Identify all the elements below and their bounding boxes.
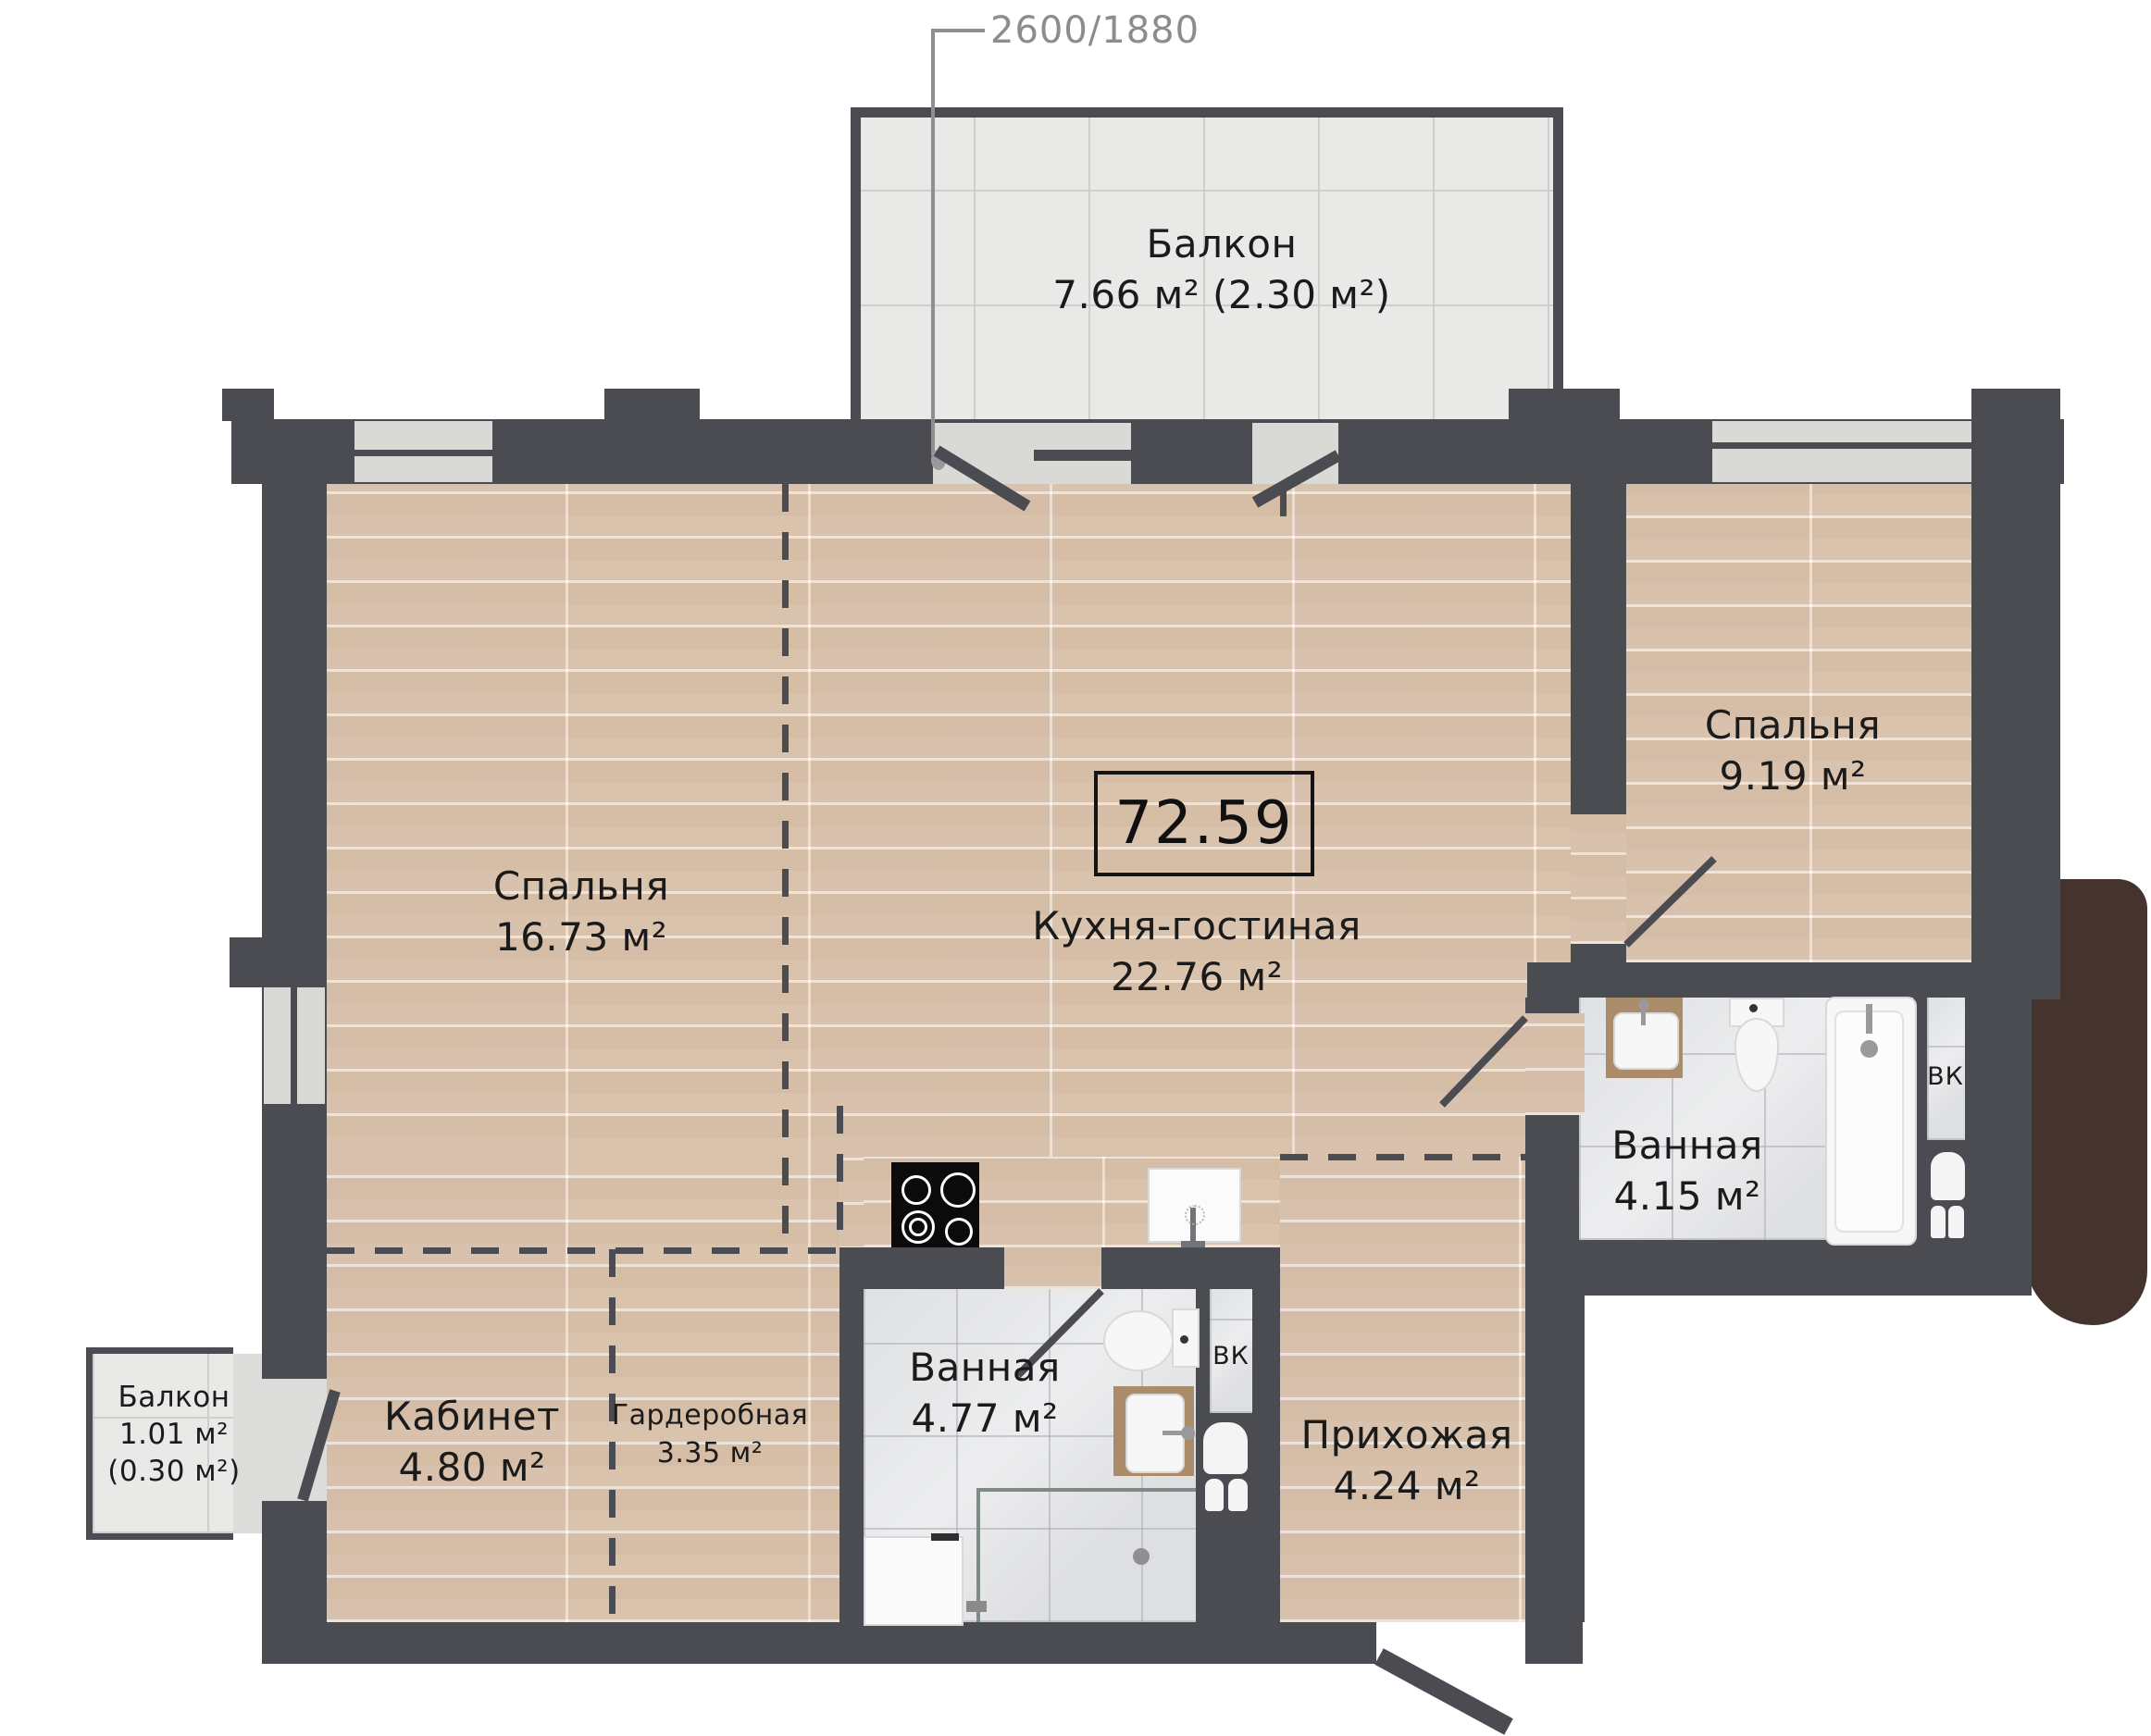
room-area: 22.76 м² [942,953,1451,1000]
room-name: Кухня-гостиная [942,902,1451,949]
stove-burner-4 [945,1218,973,1246]
floor-plan: 2600/1880 72.59 Спальня 16.73 м² Кухня-г… [0,0,2151,1736]
room-area: 4.77 м² [846,1395,1124,1442]
kitchen-faucet-aerator [1185,1205,1205,1225]
wall-bathroom-lower-top-a [864,1247,1004,1289]
room-area-line2: (0.30 м²) [80,1455,268,1490]
room-area: 3.35 м² [590,1437,830,1471]
room-label-balcony-small: Балкон 1.01 м² (0.30 м²) [80,1381,268,1489]
window-bedroom-left-side-mullion [291,987,297,1104]
room-label-bedroom-left: Спальня 16.73 м² [396,862,766,961]
room-name: Ванная [1548,1122,1826,1169]
room-area: 9.19 м² [1608,752,1978,800]
pier-top-1 [604,389,700,421]
washing-machine [864,1536,964,1626]
shaft-right-fixture-small-2 [1948,1206,1964,1238]
room-name: Спальня [1608,701,1978,749]
wall-right-bedroom [1971,419,2060,999]
stove-burner-1 [901,1175,931,1205]
room-name: Прихожая [1268,1411,1546,1458]
balcony-top-fence-top [851,107,1563,118]
wall-bottom [262,1622,1376,1664]
pier-top-left [222,389,274,421]
room-name: Балкон [80,1381,268,1416]
doorway-bathroom-right [1525,1013,1585,1115]
room-label-bathroom-right: Ванная 4.15 м² [1548,1122,1826,1220]
entrance-door-leaf [1379,1656,1509,1727]
room-area: 4.15 м² [1548,1172,1826,1220]
window-bedroom-right-top [1712,421,1971,482]
pier-top-right [1971,389,2060,421]
dashed-zone-bedroom-kitchen [782,484,789,1252]
kitchen-faucet-base [1181,1241,1205,1247]
bathtub-faucet-stem [1866,1004,1872,1034]
room-label-wardrobe: Гардеробная 3.35 м² [590,1399,830,1470]
bathtub-drain-knob [1860,1040,1878,1058]
dashed-zone-bedroom-office [327,1247,839,1254]
balcony-door-pier [1131,423,1252,484]
room-name: Балкон [1037,220,1407,267]
floor-office-wardrobe [327,1157,839,1622]
room-name: Кабинет [333,1393,611,1440]
room-name: Ванная [846,1344,1124,1391]
room-area: 16.73 м² [396,913,766,961]
room-area-line1: 1.01 м² [80,1418,268,1453]
shaft-right-fixture-large [1931,1152,1965,1200]
room-label-bathroom-lower: Ванная 4.77 м² [846,1344,1124,1442]
vanity-sink-right [1613,1012,1679,1070]
shaft-label-lower: ВК [1203,1342,1259,1370]
stove-burner-2 [940,1172,976,1208]
room-area: 4.80 м² [333,1444,611,1491]
shaft-lower-fixture-large [1203,1422,1248,1474]
room-label-balcony-top: Балкон 7.66 м² (2.30 м²) [1037,220,1407,318]
toilet-right-button [1749,1004,1758,1012]
toilet-lower-button [1180,1335,1188,1344]
room-label-hallway: Прихожая 4.24 м² [1268,1411,1546,1509]
shaft-lower-fixture-small-1 [1205,1479,1224,1511]
room-area: 4.24 м² [1268,1462,1546,1509]
washing-machine-panel [931,1533,959,1541]
wall-bathroom-right-bottom [1527,1240,2032,1296]
vanity-faucet-lower-knob [1181,1426,1195,1440]
pier-left-side [230,937,262,987]
pier-top-2 [1509,389,1620,421]
room-name: Гардеробная [590,1399,830,1433]
balcony-top-fence-right [1553,107,1563,423]
stove-burner-3-inner [909,1218,927,1236]
balcony-door-transom [1034,450,1131,461]
window-bedroom-right-top-mullion [1712,442,1971,449]
vanity-faucet-knob-right [1638,999,1649,1011]
shaft-right-fixture-small-1 [1931,1206,1946,1238]
floor-bedroom-door-threshold [1571,814,1626,944]
total-area-badge: 72.59 [1094,771,1314,876]
room-label-kitchen-living: Кухня-гостиная 22.76 м² [942,902,1451,1000]
dashed-zone-kitchen-counter [837,1106,843,1247]
shaft-label-right: ВК [1916,1062,1975,1091]
shaft-lower-fixture-small-2 [1228,1479,1248,1511]
office-balcony-doorway [262,1379,327,1501]
balcony-top-fence-left [851,107,861,423]
balcony-small-fence-bottom [86,1533,233,1540]
dimension-label: 2600/1880 [990,9,1200,52]
room-name: Спальня [396,862,766,910]
window-bedroom-left-top-mullion [354,450,492,456]
balcony-small-fence-top [86,1347,233,1354]
floor-hallway [1280,1157,1525,1622]
wall-nib-kitchen [1280,484,1287,516]
balcony-door-glass-right [1252,423,1338,484]
room-area: 7.66 м² (2.30 м²) [1037,271,1407,318]
room-label-bedroom-right: Спальня 9.19 м² [1608,701,1978,800]
doorway-bathroom-lower [1004,1247,1101,1289]
dashed-zone-kitchen-hallway [1280,1154,1527,1160]
wall-bathroom-right-top [1527,962,2032,998]
wall-entrance-corner [1525,1622,1583,1664]
room-label-office: Кабинет 4.80 м² [333,1393,611,1491]
